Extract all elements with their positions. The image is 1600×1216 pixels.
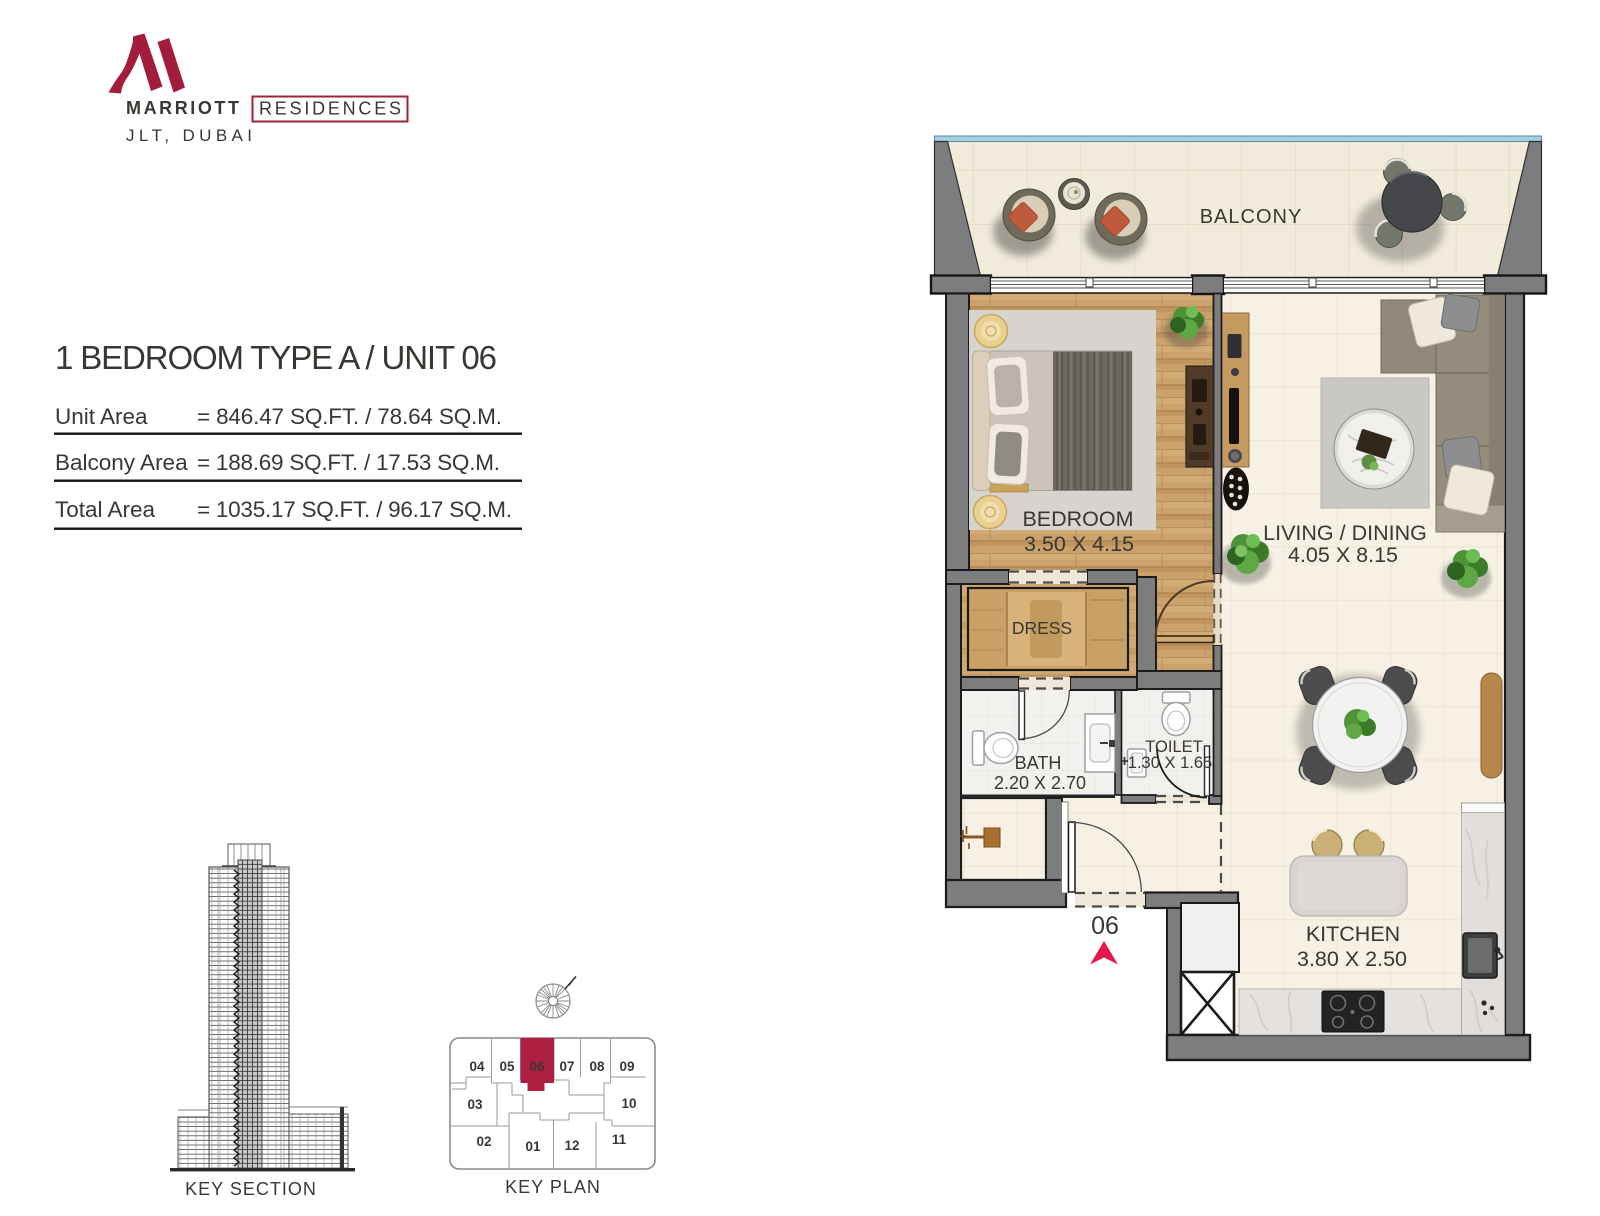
svg-text:10: 10: [621, 1096, 636, 1111]
svg-text:12: 12: [564, 1138, 579, 1153]
svg-text:01: 01: [525, 1139, 541, 1154]
svg-text:08: 08: [589, 1059, 605, 1074]
svg-text:3.80 X 2.50: 3.80 X 2.50: [1297, 947, 1407, 971]
svg-text:04: 04: [469, 1059, 485, 1074]
svg-text:02: 02: [476, 1134, 491, 1149]
svg-text:05: 05: [499, 1059, 515, 1074]
svg-text:Balcony Area: Balcony Area: [55, 450, 188, 475]
svg-text:Total Area: Total Area: [55, 497, 156, 522]
svg-text:Unit Area: Unit Area: [55, 404, 148, 429]
svg-text:BATH: BATH: [1015, 753, 1062, 773]
svg-text:LIVING / DINING: LIVING / DINING: [1263, 521, 1427, 545]
svg-text:= 188.69 SQ.FT. / 17.53 SQ.M.: = 188.69 SQ.FT. / 17.53 SQ.M.: [197, 450, 500, 475]
svg-text:KITCHEN: KITCHEN: [1306, 922, 1400, 946]
svg-text:1 BEDROOM TYPE A / UNIT 06: 1 BEDROOM TYPE A / UNIT 06: [55, 339, 497, 376]
svg-text:KEY PLAN: KEY PLAN: [505, 1177, 601, 1197]
svg-text:BEDROOM: BEDROOM: [1022, 507, 1133, 531]
svg-text:JLT, DUBAI: JLT, DUBAI: [126, 126, 252, 145]
svg-text:06: 06: [529, 1059, 545, 1074]
svg-text:3.50 X 4.15: 3.50 X 4.15: [1024, 532, 1134, 556]
svg-text:MARRIOTT: MARRIOTT: [126, 98, 244, 118]
svg-text:09: 09: [619, 1059, 634, 1074]
svg-text:03: 03: [467, 1097, 483, 1112]
svg-text:4.05 X 8.15: 4.05 X 8.15: [1288, 543, 1398, 567]
svg-text:06: 06: [1091, 912, 1119, 940]
svg-text:2.20 X 2.70: 2.20 X 2.70: [994, 773, 1086, 793]
svg-text:11: 11: [612, 1132, 627, 1147]
svg-text:= 1035.17 SQ.FT. / 96.17 SQ.M.: = 1035.17 SQ.FT. / 96.17 SQ.M.: [197, 497, 512, 522]
svg-text:RESIDENCES: RESIDENCES: [259, 99, 401, 119]
svg-text:= 846.47 SQ.FT. / 78.64 SQ.M.: = 846.47 SQ.FT. / 78.64 SQ.M.: [197, 404, 502, 429]
svg-text:KEY SECTION: KEY SECTION: [185, 1179, 317, 1199]
svg-text:BALCONY: BALCONY: [1200, 206, 1303, 228]
svg-text:DRESS: DRESS: [1012, 618, 1072, 638]
svg-text:07: 07: [559, 1059, 574, 1074]
svg-text:1.30 X 1.65: 1.30 X 1.65: [1128, 754, 1212, 772]
